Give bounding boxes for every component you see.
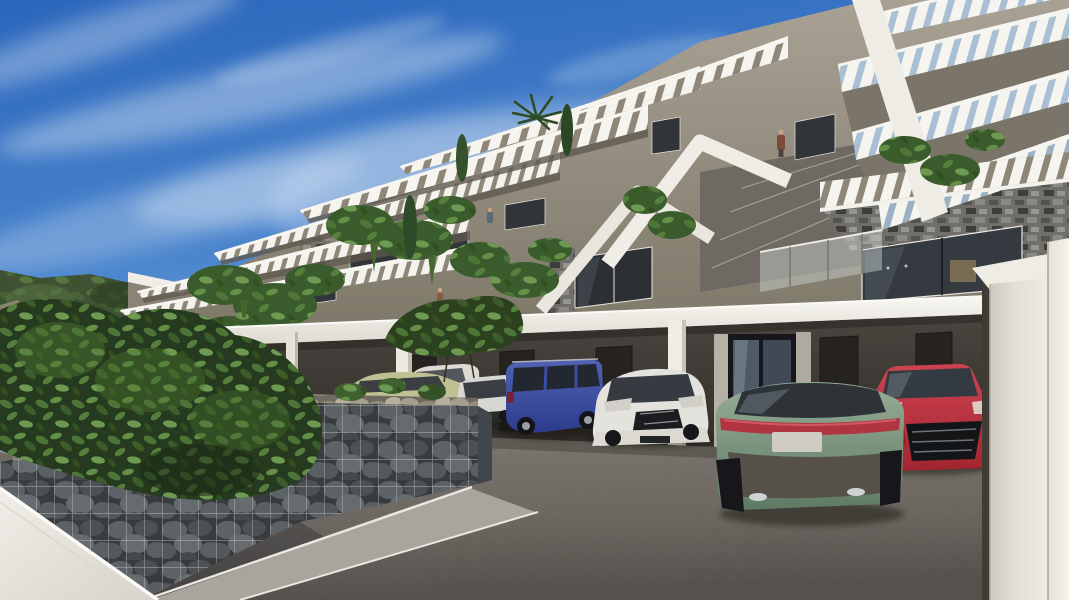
license-plate [772,432,822,452]
white-pillar [990,278,1048,600]
car-suv-blue [506,359,604,435]
right-structure [972,238,1069,600]
rendering-canvas: Modern hillside apartment complex with s… [0,0,1069,600]
framed-picture [950,260,976,282]
white-side-wall [1048,238,1069,600]
